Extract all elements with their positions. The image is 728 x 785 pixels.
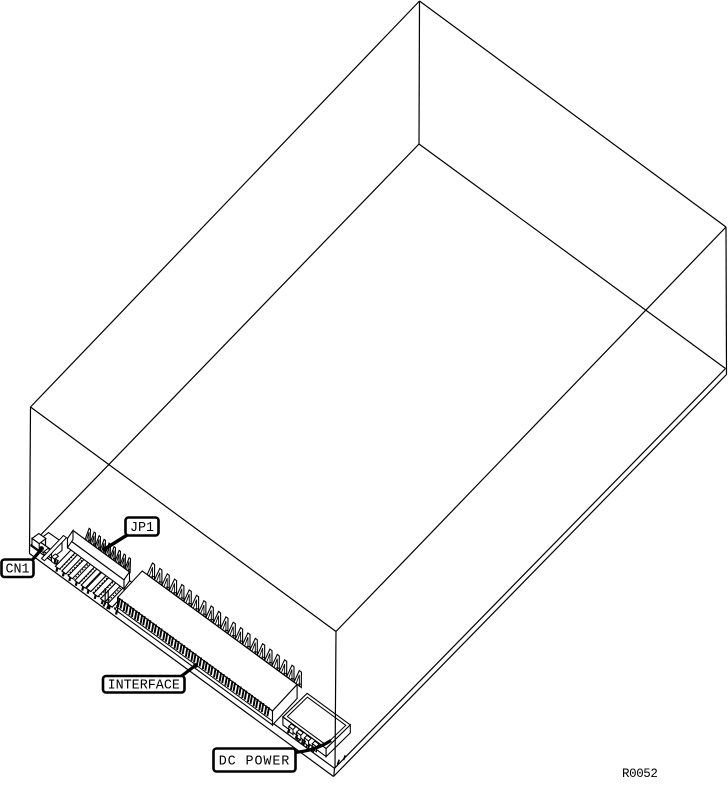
svg-text:DC POWER: DC POWER: [219, 754, 291, 769]
svg-text:CN1: CN1: [5, 563, 29, 578]
svg-text:INTERFACE: INTERFACE: [108, 679, 180, 694]
svg-text:JP1: JP1: [130, 521, 154, 536]
svg-text:R0052: R0052: [622, 767, 658, 781]
